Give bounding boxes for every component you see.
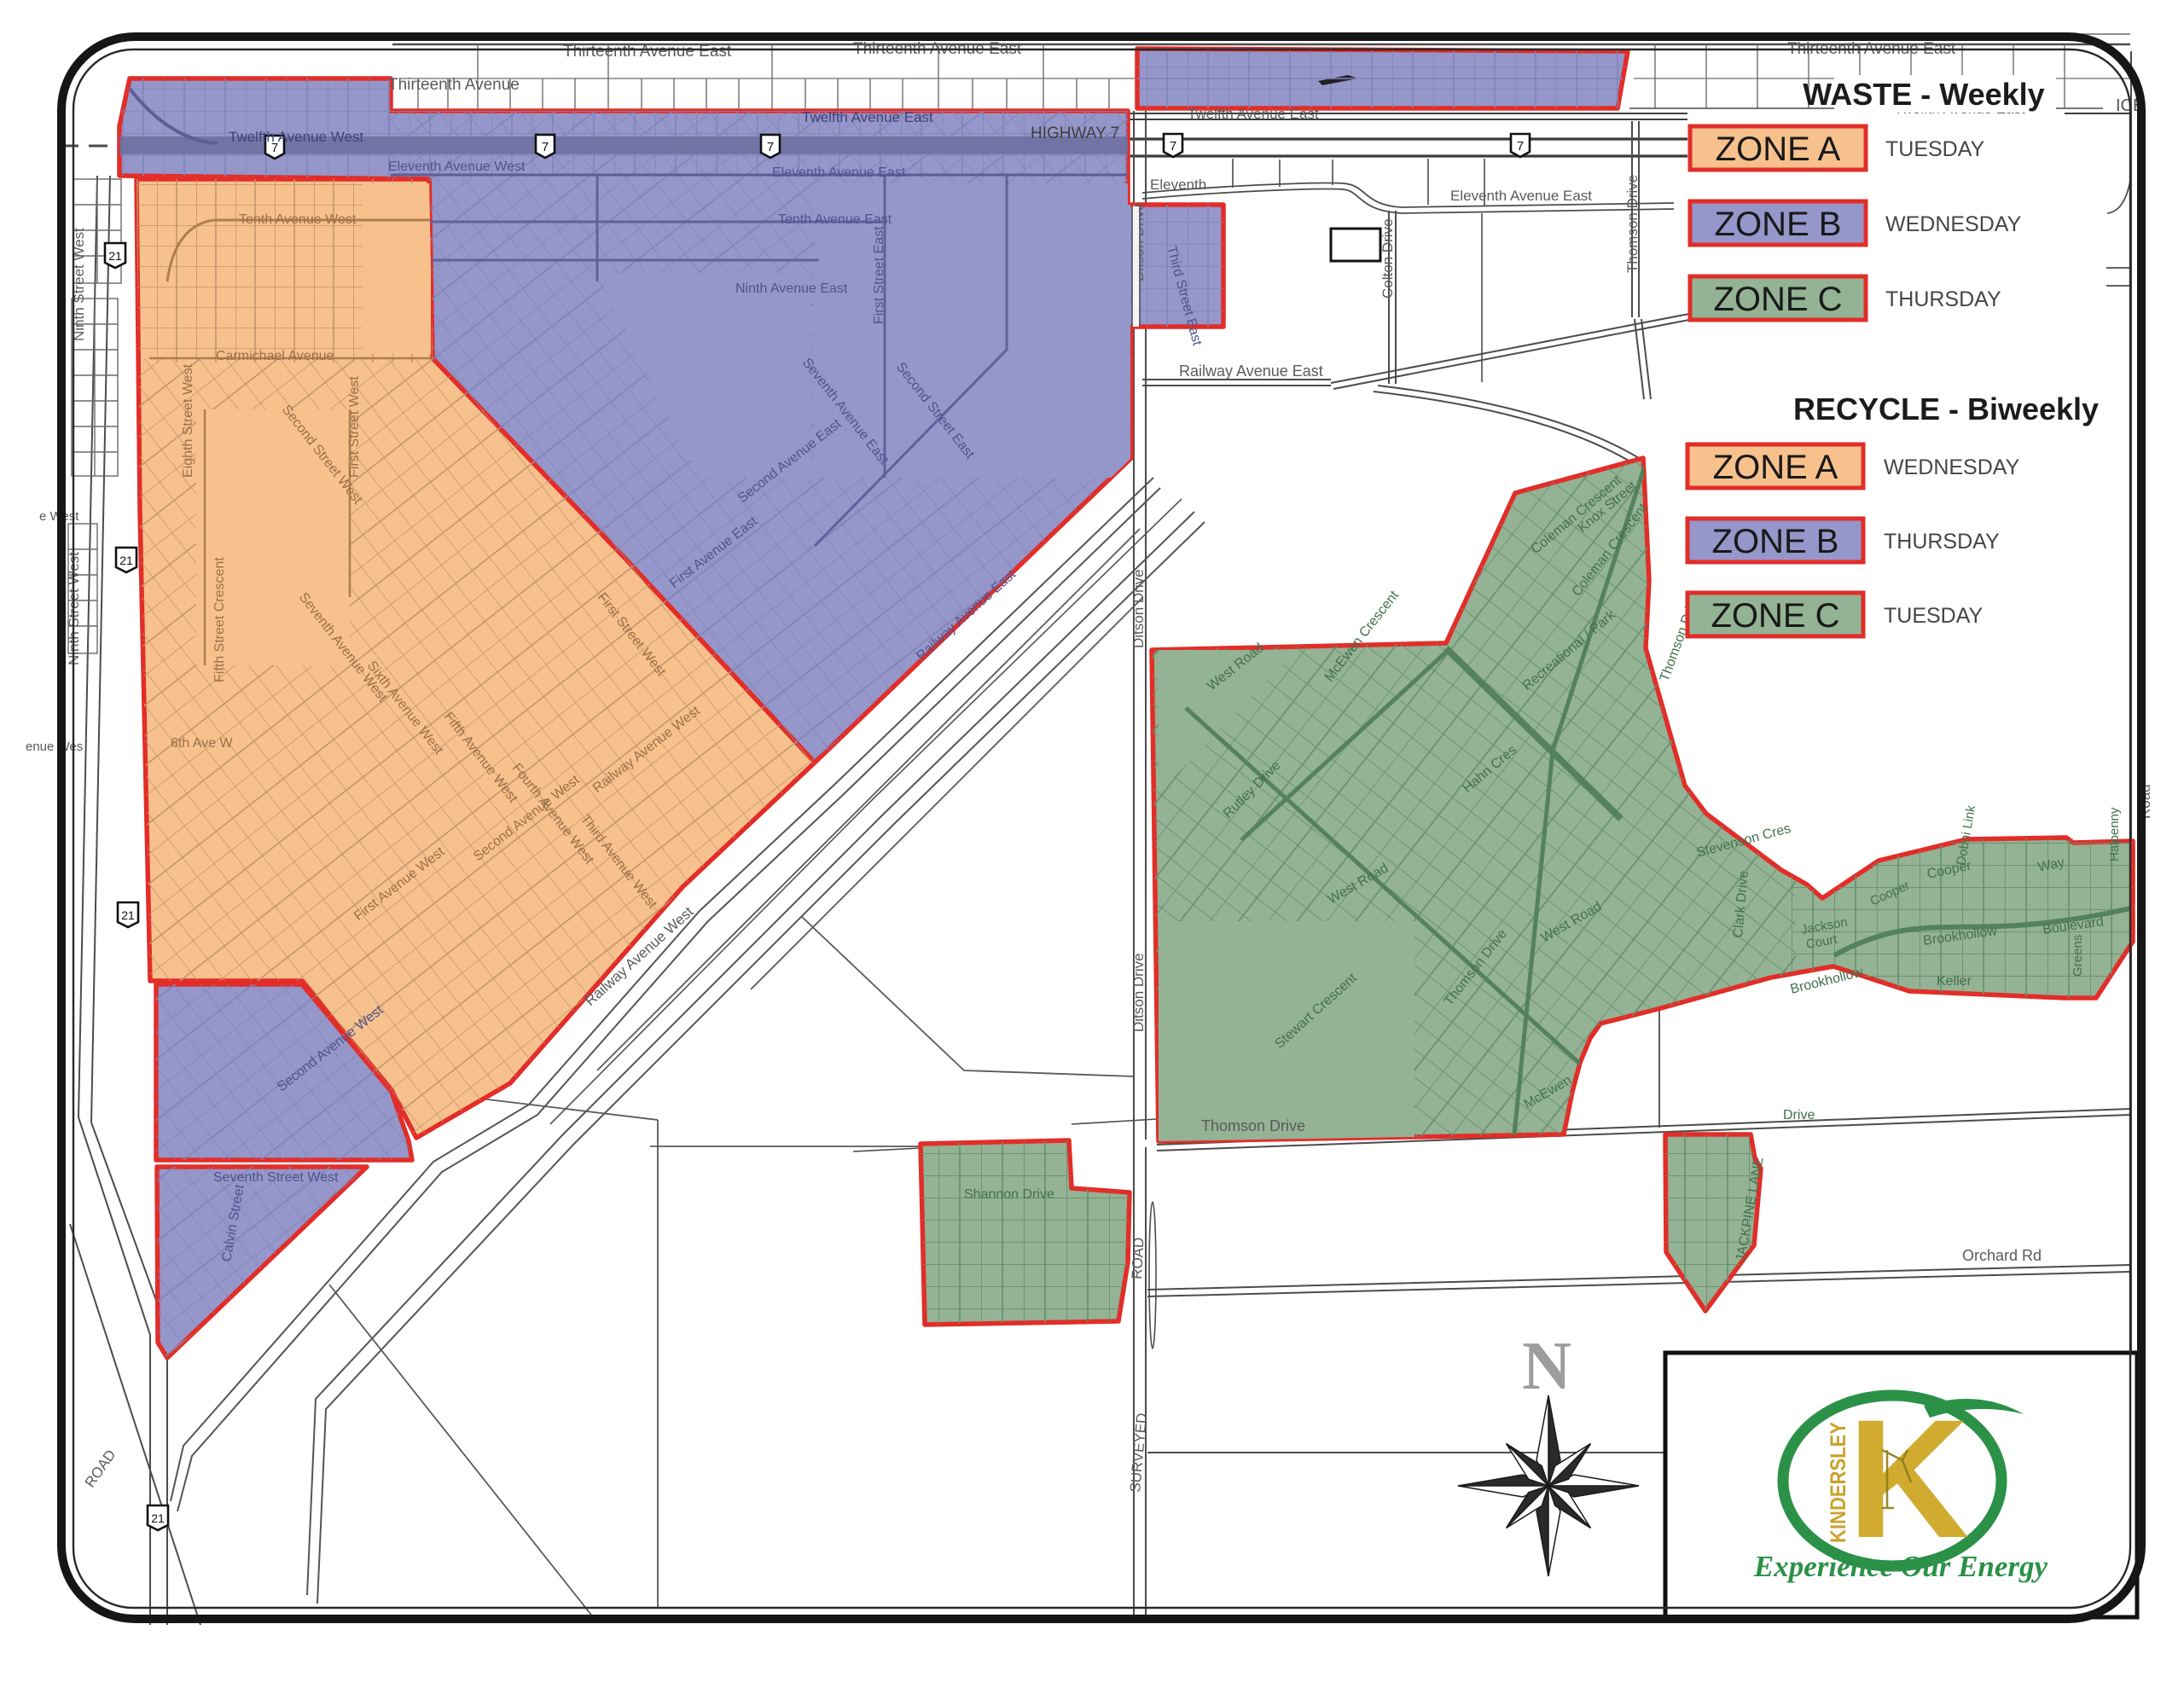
svg-text:Orchard Rd: Orchard Rd <box>1962 1247 2042 1264</box>
svg-text:N: N <box>1522 1329 1571 1404</box>
svg-text:ZONE A: ZONE A <box>1713 449 1838 486</box>
svg-text:ZONE B: ZONE B <box>1712 523 1839 560</box>
svg-text:Halpenny: Halpenny <box>2107 807 2122 861</box>
svg-text:TUESDAY: TUESDAY <box>1884 604 1984 628</box>
svg-text:TUESDAY: TUESDAY <box>1885 137 1985 161</box>
svg-text:Ninth Avenue East: Ninth Avenue East <box>735 281 848 296</box>
svg-text:Thirteenth Avenue: Thirteenth Avenue <box>388 76 520 94</box>
svg-text:Drive: Drive <box>1783 1108 1815 1122</box>
svg-text:Eleventh: Eleventh <box>1150 177 1206 193</box>
svg-text:Tenth Avenue East: Tenth Avenue East <box>778 212 892 227</box>
svg-text:First Street East: First Street East <box>872 226 886 324</box>
svg-text:Ditson Drive: Ditson Drive <box>1130 569 1147 648</box>
svg-text:Twelfth Avenue East: Twelfth Avenue East <box>1188 106 1319 122</box>
svg-text:Colton Drive: Colton Drive <box>1380 218 1396 299</box>
svg-text:Thomson Drive: Thomson Drive <box>1624 175 1641 273</box>
svg-text:WASTE - Weekly: WASTE - Weekly <box>1803 77 2044 112</box>
svg-text:ROAD: ROAD <box>1129 1237 1147 1279</box>
svg-text:ZONE B: ZONE B <box>1715 206 1842 243</box>
svg-text:7: 7 <box>767 140 774 154</box>
svg-text:Shannon Drive: Shannon Drive <box>964 1187 1054 1202</box>
svg-text:WEDNESDAY: WEDNESDAY <box>1884 455 2020 479</box>
svg-text:Twelfth Avenue West: Twelfth Avenue West <box>229 129 363 145</box>
svg-text:Thirteenth Avenue East: Thirteenth Avenue East <box>563 43 732 61</box>
svg-text:Eleventh Avenue East: Eleventh Avenue East <box>1450 188 1592 204</box>
svg-text:7: 7 <box>1517 139 1524 154</box>
svg-text:Seventh Street West: Seventh Street West <box>213 1170 339 1185</box>
svg-text:7: 7 <box>542 140 549 154</box>
svg-text:Eighth Street West: Eighth Street West <box>181 363 195 478</box>
svg-text:WEDNESDAY: WEDNESDAY <box>1885 212 2022 236</box>
svg-text:ZONE C: ZONE C <box>1711 597 1839 635</box>
svg-text:Greens: Greens <box>2071 935 2085 977</box>
svg-text:Twelfth Avenue East: Twelfth Avenue East <box>802 109 933 125</box>
svg-text:Thomson Drive: Thomson Drive <box>1201 1117 1305 1134</box>
svg-text:THURSDAY: THURSDAY <box>1885 287 2001 311</box>
svg-text:Carmichael Avenue: Carmichael Avenue <box>216 349 334 363</box>
svg-text:THURSDAY: THURSDAY <box>1884 530 2000 554</box>
svg-text:HIGHWAY 7: HIGHWAY 7 <box>1031 125 1119 142</box>
svg-text:7: 7 <box>1170 139 1176 154</box>
svg-text:Ditson Drive: Ditson Drive <box>1130 953 1147 1032</box>
svg-text:6th Ave W: 6th Ave W <box>171 736 234 751</box>
svg-text:Keller: Keller <box>1937 974 1972 989</box>
svg-text:21: 21 <box>151 1511 165 1525</box>
svg-text:Eleventh Avenue West: Eleventh Avenue West <box>388 159 526 174</box>
svg-text:21: 21 <box>119 554 133 567</box>
svg-text:Railway Avenue East: Railway Avenue East <box>1179 362 1323 380</box>
svg-text:21: 21 <box>121 908 135 922</box>
svg-text:ZONE C: ZONE C <box>1713 281 1842 318</box>
svg-text:21: 21 <box>108 249 122 263</box>
svg-text:Fifth Street Crescent: Fifth Street Crescent <box>212 557 227 682</box>
svg-text:ZONE A: ZONE A <box>1716 130 1841 168</box>
svg-text:Experience Our Energy: Experience Our Energy <box>1753 1550 2048 1583</box>
svg-text:KINDERSLEY: KINDERSLEY <box>1827 1422 1850 1543</box>
svg-text:First Street West: First Street West <box>347 376 362 478</box>
svg-text:RECYCLE - Biweekly: RECYCLE - Biweekly <box>1793 391 2099 426</box>
svg-text:Eleventh Avenue East: Eleventh Avenue East <box>772 165 906 180</box>
svg-text:Tenth Avenue West: Tenth Avenue West <box>239 212 357 227</box>
